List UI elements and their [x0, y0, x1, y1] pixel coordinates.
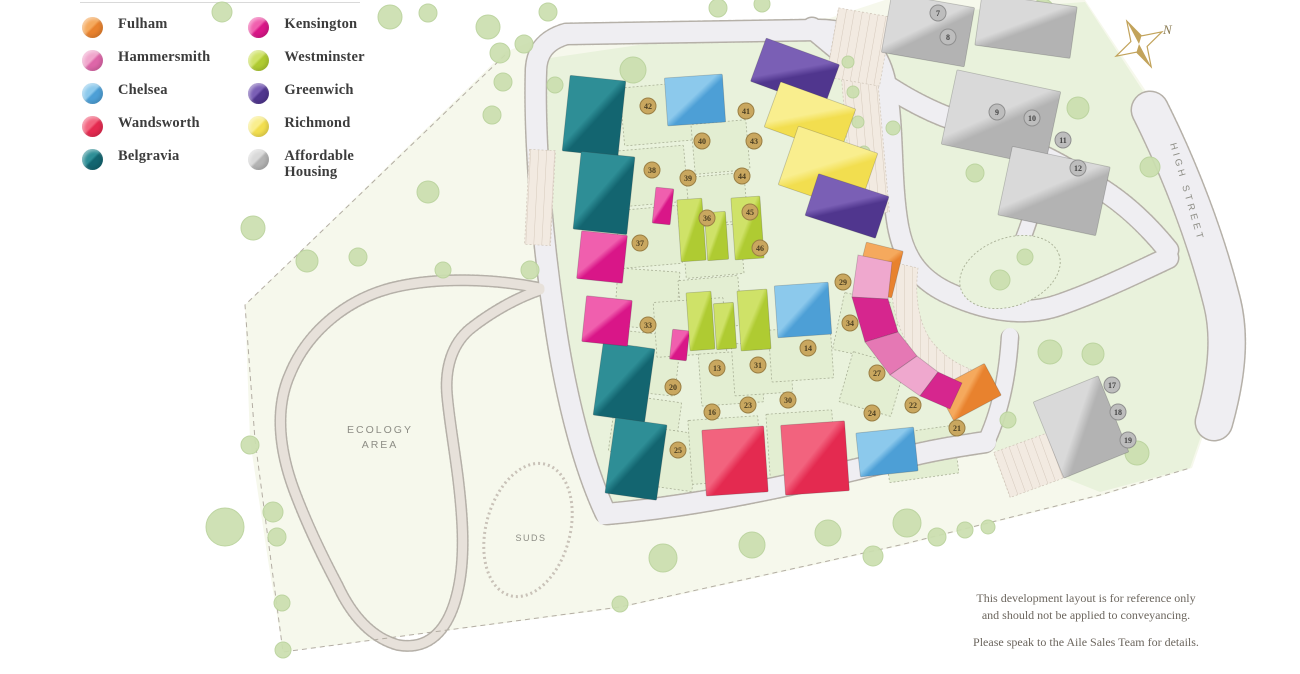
disclaimer-line-2: and should not be applied to conveyancin…	[982, 608, 1190, 622]
building-chelsea	[856, 427, 918, 477]
plot-number-text: 34	[846, 319, 854, 328]
tree	[547, 77, 563, 93]
plot-number-badge: 19	[1120, 432, 1136, 448]
building-kensington	[582, 296, 633, 347]
tree	[349, 248, 367, 266]
plot-number-text: 18	[1114, 408, 1122, 417]
tree	[241, 216, 265, 240]
tree	[863, 546, 883, 566]
plot-number-text: 29	[839, 278, 847, 287]
plot-number-text: 17	[1108, 381, 1116, 390]
tree	[263, 502, 283, 522]
tree	[852, 116, 864, 128]
plot-number-text: 9	[995, 108, 999, 117]
tree	[483, 106, 501, 124]
plot-number-badge: 40	[694, 133, 710, 149]
compass-north-label: N	[1162, 22, 1173, 37]
plot-number-text: 42	[644, 102, 652, 111]
building-westminster	[677, 198, 706, 262]
tree	[739, 532, 765, 558]
tree	[928, 528, 946, 546]
tree	[886, 121, 900, 135]
plot-number-badge: 11	[1055, 132, 1071, 148]
tree	[539, 3, 557, 21]
plot-number-text: 21	[953, 424, 961, 433]
plot-number-text: 37	[636, 239, 644, 248]
tree	[966, 164, 984, 182]
tree	[417, 181, 439, 203]
plot-number-badge: 45	[742, 204, 758, 220]
plot-number-badge: 22	[905, 397, 921, 413]
tree	[515, 35, 533, 53]
development-site-plan: 4241404339443845463736342914311320162330…	[0, 0, 1300, 674]
plot-number-badge: 8	[940, 29, 956, 45]
tree	[990, 270, 1010, 290]
suds-label: SUDS	[515, 533, 546, 543]
plot-number-badge: 30	[780, 392, 796, 408]
tree	[275, 642, 291, 658]
plot-number-text: 27	[873, 369, 881, 378]
disclaimer-line-1: This development layout is for reference…	[976, 591, 1195, 605]
tree	[754, 0, 770, 12]
plot-number-badge: 27	[869, 365, 885, 381]
plot-number-badge: 29	[835, 274, 851, 290]
plot-number-text: 38	[648, 166, 656, 175]
tree	[419, 4, 437, 22]
tree	[206, 508, 244, 546]
building-westminster	[686, 291, 715, 351]
plot-number-badge: 14	[800, 340, 816, 356]
plot-number-badge: 31	[750, 357, 766, 373]
plot-number-text: 41	[742, 107, 750, 116]
plot-number-badge: 13	[709, 360, 725, 376]
plot-number-badge: 25	[670, 442, 686, 458]
plot-number-text: 46	[756, 244, 764, 253]
plot-number-text: 20	[669, 383, 677, 392]
building-kensington	[652, 187, 674, 225]
plot-number-badge: 10	[1024, 110, 1040, 126]
plot-number-badge: 17	[1104, 377, 1120, 393]
tree	[476, 15, 500, 39]
building-belgravia	[573, 151, 635, 234]
plot-number-badge: 44	[734, 168, 750, 184]
tree	[1067, 97, 1089, 119]
plot-number-badge: 34	[842, 315, 858, 331]
plot-number-badge: 37	[632, 235, 648, 251]
plot-number-text: 25	[674, 446, 682, 455]
tree	[842, 56, 854, 68]
tree	[378, 5, 402, 29]
tree	[241, 436, 259, 454]
plot-number-text: 11	[1059, 136, 1067, 145]
plot-number-badge: 18	[1110, 404, 1126, 420]
plot-number-text: 7	[936, 9, 940, 18]
plot-number-badge: 33	[640, 317, 656, 333]
plot-number-text: 30	[784, 396, 792, 405]
disclaimer: This development layout is for reference…	[952, 590, 1220, 651]
building-belgravia	[593, 342, 655, 423]
plot-number-badge: 43	[746, 133, 762, 149]
tree	[620, 57, 646, 83]
plot-number-badge: 46	[752, 240, 768, 256]
tree	[268, 528, 286, 546]
plot-number-badge: 12	[1070, 160, 1086, 176]
plot-number-text: 10	[1028, 114, 1036, 123]
ecology-area-label: ECOLOGY	[347, 424, 413, 436]
plot-number-badge: 21	[949, 420, 965, 436]
building-westminster	[713, 302, 736, 349]
plot-number-text: 23	[744, 401, 752, 410]
ecology-area-label: AREA	[362, 439, 399, 451]
plot-number-text: 16	[708, 408, 716, 417]
plot-number-badge: 38	[644, 162, 660, 178]
plot-number-badge: 42	[640, 98, 656, 114]
tree	[1082, 343, 1104, 365]
building-chelsea	[774, 282, 831, 338]
tree	[274, 595, 290, 611]
plot-number-text: 22	[909, 401, 917, 410]
tree	[1017, 249, 1033, 265]
plot-number-text: 31	[754, 361, 762, 370]
building-wandsworth	[781, 421, 850, 495]
parking-court	[525, 149, 556, 245]
building-chelsea	[664, 74, 725, 126]
plot-number-badge: 16	[704, 404, 720, 420]
plot-number-badge: 23	[740, 397, 756, 413]
disclaimer-line-3: Please speak to the Aile Sales Team for …	[952, 634, 1220, 651]
tree	[1000, 412, 1016, 428]
tree	[1038, 340, 1062, 364]
tree	[981, 520, 995, 534]
plot-number-text: 40	[698, 137, 706, 146]
tree	[815, 520, 841, 546]
plot-number-badge: 36	[699, 210, 715, 226]
plot-number-text: 44	[738, 172, 746, 181]
plot-number-badge: 9	[989, 104, 1005, 120]
plot-number-badge: 20	[665, 379, 681, 395]
plot-number-text: 24	[868, 409, 876, 418]
building-kensington	[577, 231, 628, 284]
plot-number-text: 19	[1124, 436, 1132, 445]
tree	[957, 522, 973, 538]
tree	[494, 73, 512, 91]
plot-number-badge: 7	[930, 5, 946, 21]
tree	[490, 43, 510, 63]
plot-number-badge: 24	[864, 405, 880, 421]
building-westminster	[737, 289, 771, 351]
plot-number-text: 13	[713, 364, 721, 373]
tree	[296, 250, 318, 272]
plot-number-text: 33	[644, 321, 652, 330]
site-plan-page: FulhamHammersmithChelseaWandsworthBelgra…	[0, 0, 1300, 674]
building-belgravia	[562, 75, 626, 156]
tree	[1140, 157, 1160, 177]
plot-number-text: 12	[1074, 164, 1082, 173]
building-belgravia	[605, 418, 667, 500]
tree	[709, 0, 727, 17]
plot-number-text: 43	[750, 137, 758, 146]
plot-number-text: 45	[746, 208, 754, 217]
building-kensington	[669, 329, 689, 361]
tree	[212, 2, 232, 22]
plot-number-text: 14	[804, 344, 812, 353]
tree	[521, 261, 539, 279]
plot-number-text: 8	[946, 33, 950, 42]
tree	[893, 509, 921, 537]
building-crescent-terrace	[852, 255, 892, 299]
plot-number-badge: 41	[738, 103, 754, 119]
tree	[649, 544, 677, 572]
tree	[612, 596, 628, 612]
plot-number-badge: 39	[680, 170, 696, 186]
plot-number-text: 36	[703, 214, 711, 223]
tree	[847, 86, 859, 98]
building-wandsworth	[702, 426, 768, 496]
tree	[435, 262, 451, 278]
plot-number-text: 39	[684, 174, 692, 183]
